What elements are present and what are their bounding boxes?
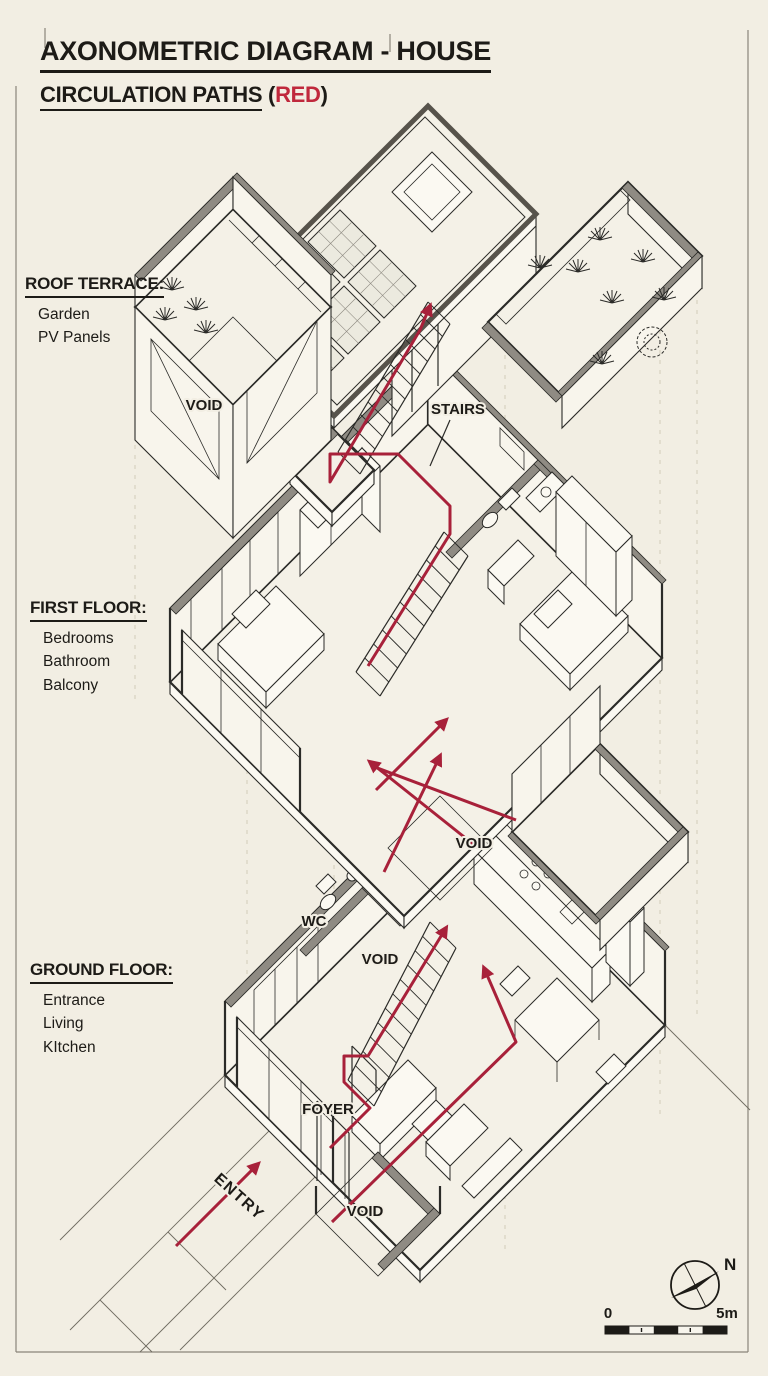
ground-floor-label: GROUND FLOOR: Entrance Living KItchen: [30, 960, 173, 1059]
void-roof-label: VOID: [186, 397, 223, 414]
compass: N: [671, 1255, 736, 1309]
subtitle-paren-open: (: [268, 82, 275, 107]
roof-item-pv: PV Panels: [38, 326, 164, 349]
stairs-label: STAIRS: [431, 401, 485, 418]
roof-terrace-heading: ROOF TERRACE:: [25, 274, 164, 298]
scale-zero-label: 0: [604, 1305, 612, 1322]
first-item-bathroom: Bathroom: [43, 650, 147, 673]
ground-item-kitchen: KItchen: [43, 1036, 173, 1059]
subtitle-main: CIRCULATION PATHS: [40, 82, 262, 111]
roof-terrace-label: ROOF TERRACE: Garden PV Panels: [25, 274, 164, 350]
first-floor-label: FIRST FLOOR: Bedrooms Bathroom Balcony: [30, 598, 147, 697]
page-title: AXONOMETRIC DIAGRAM - HOUSE: [40, 36, 491, 73]
scale-5m-label: 5m: [716, 1305, 738, 1322]
subtitle-paren-close: ): [321, 82, 328, 107]
diagram-page: STAIRS VOID VOID VOID VOID WC FOYER ENTR…: [0, 0, 768, 1376]
ground-item-living: Living: [43, 1012, 173, 1035]
first-item-bedrooms: Bedrooms: [43, 627, 147, 650]
roof-item-garden: Garden: [38, 303, 164, 326]
foyer-label: FOYER: [302, 1101, 354, 1118]
ground-floor-heading: GROUND FLOOR:: [30, 960, 173, 984]
compass-north-label: N: [724, 1255, 736, 1274]
scale-bar: 0 5m: [604, 1305, 738, 1334]
void-entry-label: VOID: [347, 1203, 384, 1220]
first-item-balcony: Balcony: [43, 674, 147, 697]
subtitle-red-word: RED: [275, 82, 321, 107]
ground-item-entrance: Entrance: [43, 989, 173, 1012]
void-stairwell-label: VOID: [362, 951, 399, 968]
void-first-floor-label: VOID: [456, 835, 493, 852]
title-block: AXONOMETRIC DIAGRAM - HOUSE CIRCULATION …: [40, 36, 491, 108]
wc-label: WC: [302, 913, 327, 930]
page-subtitle: CIRCULATION PATHS (RED): [40, 82, 491, 108]
first-floor-heading: FIRST FLOOR:: [30, 598, 147, 622]
entry-label: ENTRY: [211, 1170, 268, 1224]
